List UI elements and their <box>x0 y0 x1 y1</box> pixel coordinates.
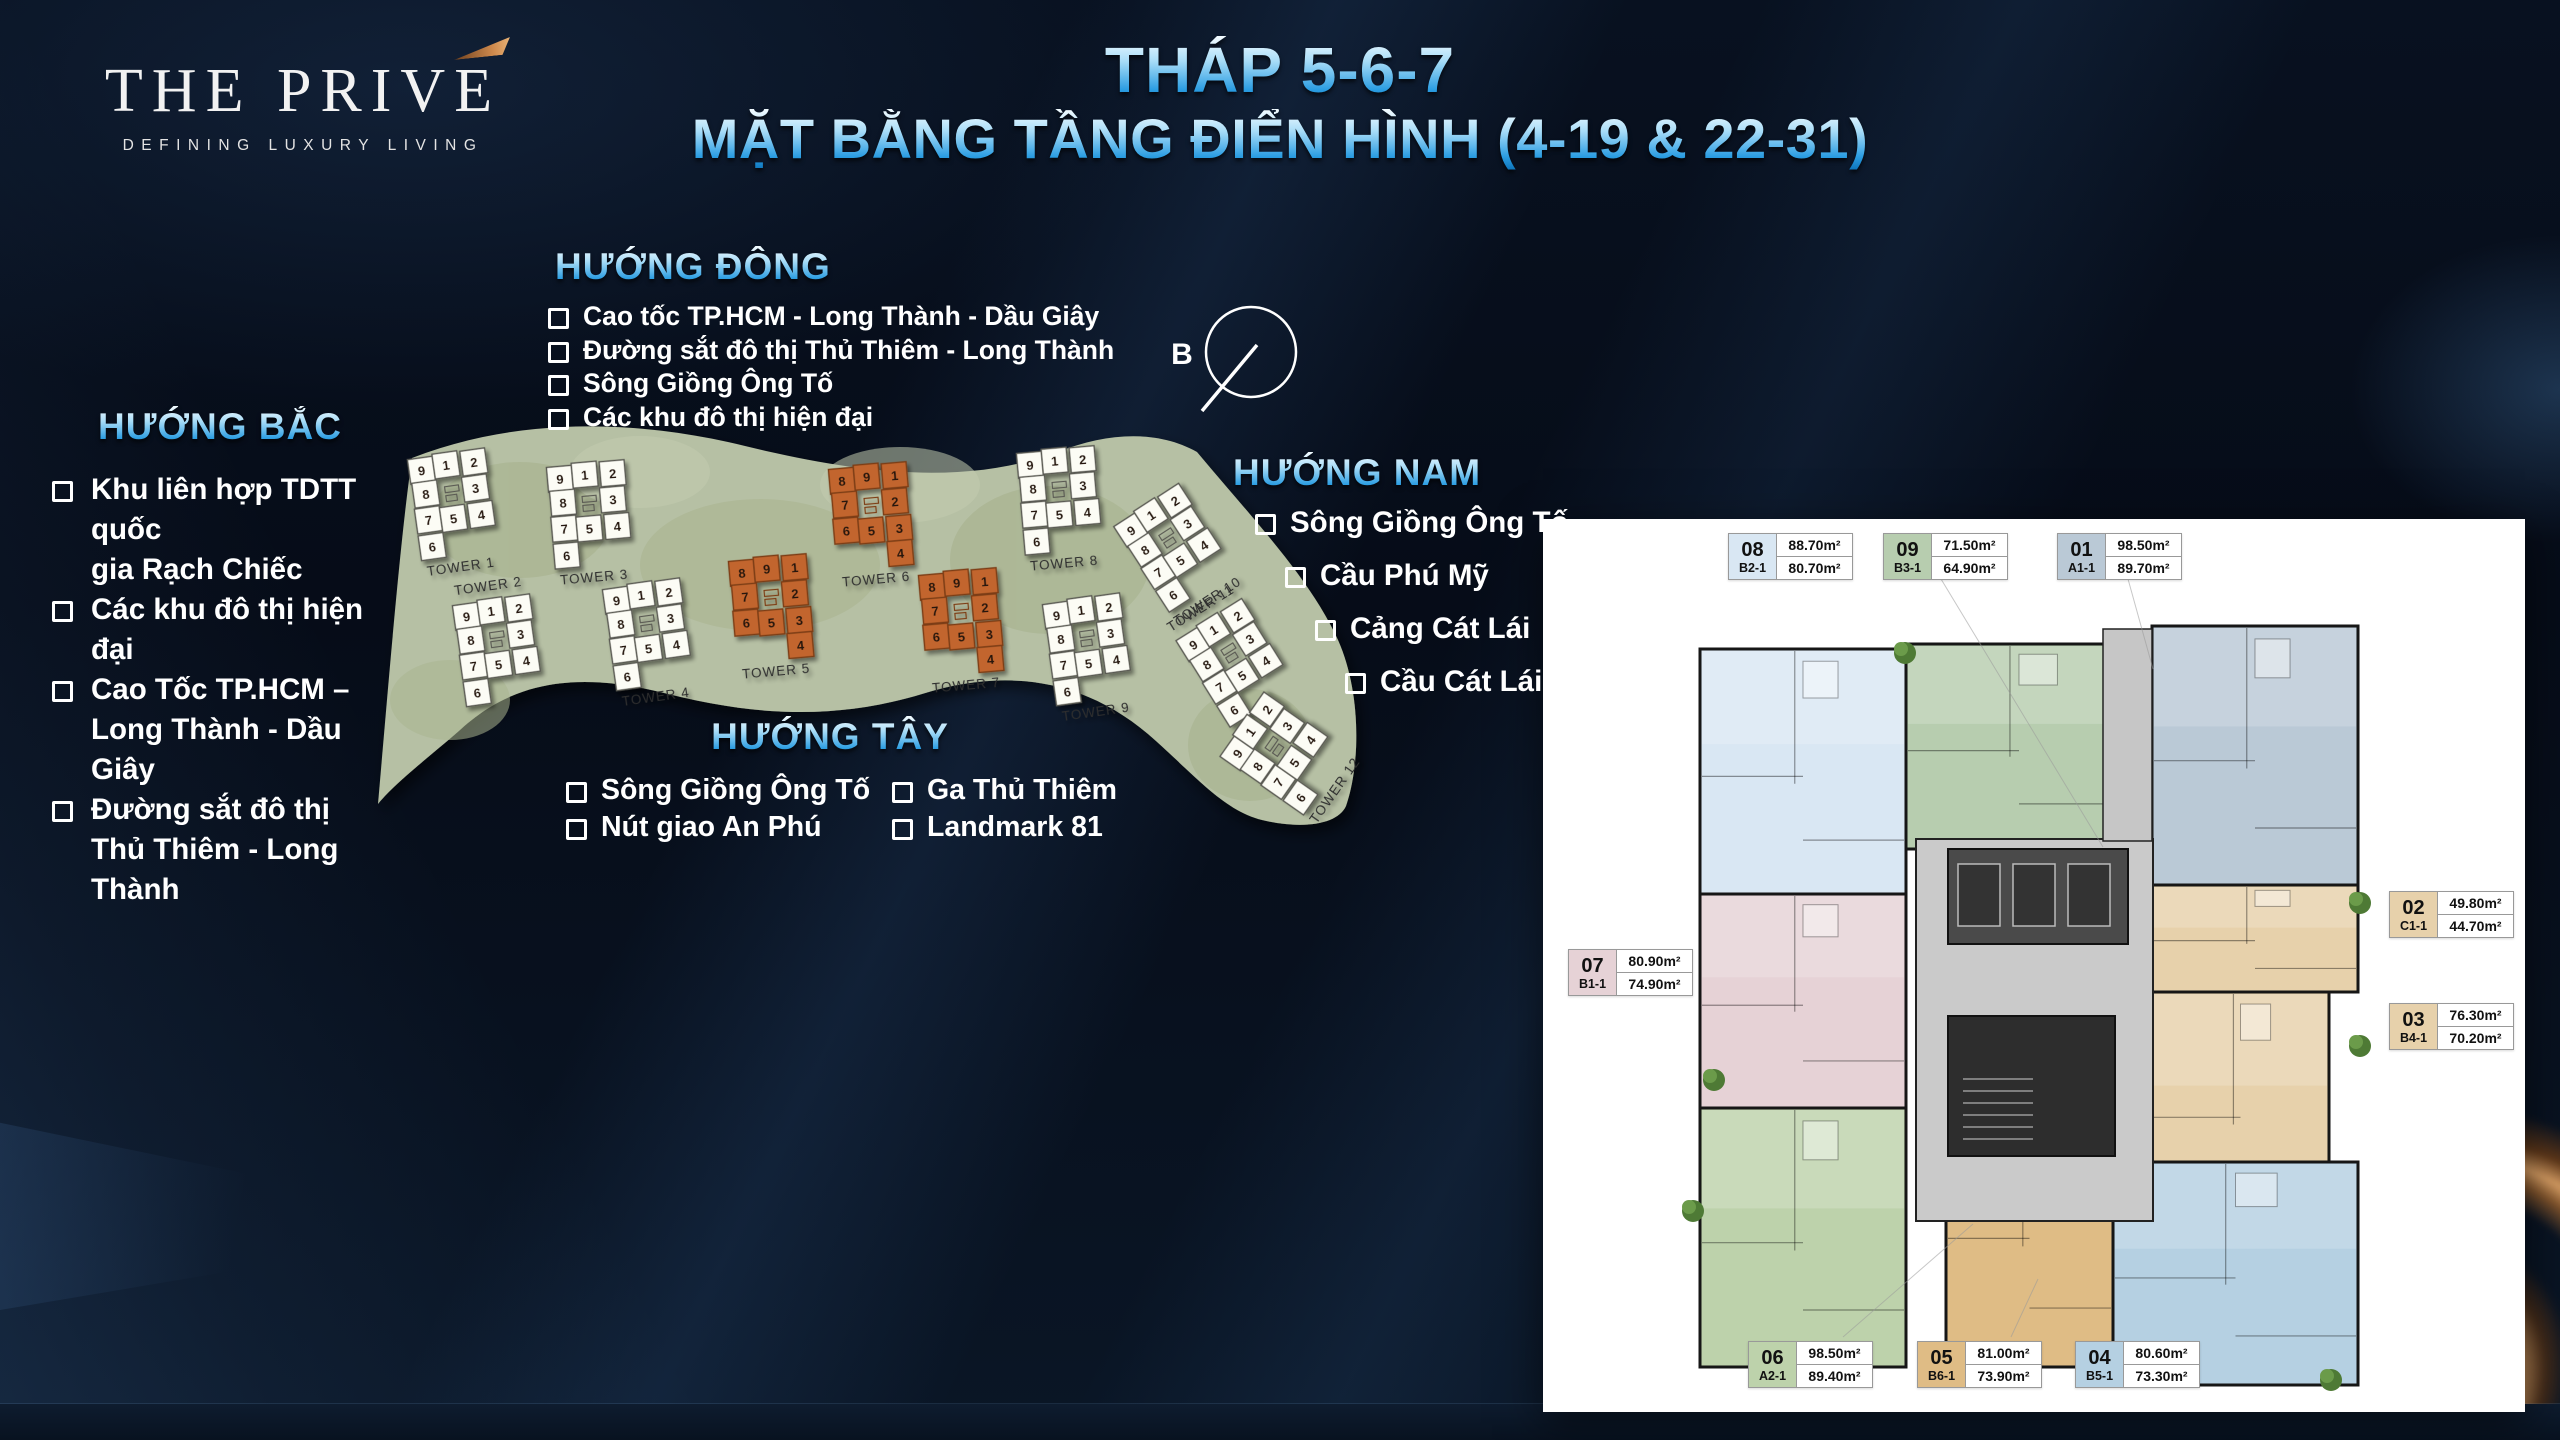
unit-number: 06 <box>1761 1347 1783 1369</box>
unit-area-net: 89.70m² <box>2106 556 2182 580</box>
unit-area-gross: 76.30m² <box>2438 1003 2514 1027</box>
unit-number-cell: 04B5-1 <box>2075 1341 2124 1388</box>
checkbox-bullet-icon <box>548 409 569 430</box>
unit-area-net: 64.90m² <box>1932 556 2008 580</box>
unit-code: B4-1 <box>2400 1031 2427 1045</box>
unit-area-net: 89.40m² <box>1797 1364 1873 1388</box>
title-line-2: MẶT BẰNG TẦNG ĐIỂN HÌNH (4-19 & 22-31) <box>560 109 2000 169</box>
list-item-label: Các khu đô thị hiện đại <box>583 401 873 435</box>
unit-areas: 80.90m²74.90m² <box>1617 949 1693 996</box>
checkbox-bullet-icon <box>548 375 569 396</box>
unit-code: C1-1 <box>2400 919 2427 933</box>
unit-number-cell: 02C1-1 <box>2389 891 2438 938</box>
unit-area-gross: 71.50m² <box>1932 533 2008 557</box>
unit-number-cell: 01A1-1 <box>2057 533 2106 580</box>
direction-north: HƯỚNG BẮC Khu liên hợp TDTT quốc gia Rạc… <box>32 406 408 910</box>
list-item-label: Nút giao An Phú <box>601 809 822 846</box>
list-item-label: Các khu đô thị hiện đại <box>91 590 408 670</box>
checkbox-bullet-icon <box>52 601 73 622</box>
unit-number-cell: 09B3-1 <box>1883 533 1932 580</box>
direction-east-list: Cao tốc TP.HCM - Long Thành - Dầu GiâyĐư… <box>548 300 1188 434</box>
direction-south-heading: HƯỚNG NAM <box>1233 452 1585 494</box>
direction-south-list: Sông Giồng Ông TốCầu Phú MỹCảng Cát LáiC… <box>1225 504 1585 700</box>
unit-area-gross: 88.70m² <box>1777 533 1853 557</box>
unit-number: 08 <box>1741 539 1763 561</box>
list-item-label: Đường sắt đô thị Thủ Thiêm - Long Thành <box>583 334 1114 368</box>
unit-code: B6-1 <box>1928 1369 1955 1383</box>
unit-number: 01 <box>2070 539 2092 561</box>
unit-area-net: 44.70m² <box>2438 914 2514 938</box>
unit-area-gross: 98.50m² <box>1797 1341 1873 1365</box>
unit-label-01: 01A1-198.50m²89.70m² <box>2057 533 2182 580</box>
unit-number-cell: 05B6-1 <box>1917 1341 1966 1388</box>
unit-labels: 08B2-188.70m²80.70m²09B3-171.50m²64.90m²… <box>1543 519 2525 1412</box>
direction-north-list: Khu liên hợp TDTT quốc gia Rạch ChiếcCác… <box>32 470 408 910</box>
checkbox-bullet-icon <box>52 681 73 702</box>
unit-label-04: 04B5-180.60m²73.30m² <box>2075 1341 2200 1388</box>
list-item-label: Ga Thủ Thiêm <box>927 772 1117 809</box>
unit-label-09: 09B3-171.50m²64.90m² <box>1883 533 2008 580</box>
unit-label-07: 07B1-180.90m²74.90m² <box>1568 949 1693 996</box>
checkbox-bullet-icon <box>52 801 73 822</box>
page-title: THÁP 5-6-7 MẶT BẰNG TẦNG ĐIỂN HÌNH (4-19… <box>560 36 2000 170</box>
unit-area-net: 74.90m² <box>1617 972 1693 996</box>
checkbox-bullet-icon <box>892 782 913 803</box>
list-item: Cảng Cát Lái <box>1225 610 1585 647</box>
direction-east: HƯỚNG ĐÔNG Cao tốc TP.HCM - Long Thành -… <box>548 246 1188 434</box>
unit-number: 09 <box>1896 539 1918 561</box>
unit-code: A2-1 <box>1759 1369 1786 1383</box>
unit-label-02: 02C1-149.80m²44.70m² <box>2389 891 2514 938</box>
unit-areas: 80.60m²73.30m² <box>2124 1341 2200 1388</box>
unit-area-net: 73.30m² <box>2124 1364 2200 1388</box>
list-item-label: Khu liên hợp TDTT quốc gia Rạch Chiếc <box>91 470 408 590</box>
unit-code: B1-1 <box>1579 977 1606 991</box>
unit-label-05: 05B6-181.00m²73.90m² <box>1917 1341 2042 1388</box>
list-item-label: Cao tốc TP.HCM - Long Thành - Dầu Giây <box>583 300 1099 334</box>
list-item: Landmark 81 <box>892 809 1117 846</box>
list-item: Cao tốc TP.HCM - Long Thành - Dầu Giây <box>548 300 1188 334</box>
direction-west-list-2: Ga Thủ ThiêmLandmark 81 <box>892 772 1117 846</box>
unit-number-cell: 03B4-1 <box>2389 1003 2438 1050</box>
unit-code: B2-1 <box>1739 561 1766 575</box>
checkbox-bullet-icon <box>1315 620 1336 641</box>
checkbox-bullet-icon <box>1285 567 1306 588</box>
checkbox-bullet-icon <box>566 782 587 803</box>
list-item-label: Landmark 81 <box>927 809 1103 846</box>
unit-areas: 88.70m²80.70m² <box>1777 533 1853 580</box>
list-item-label: Sông Giồng Ông Tố <box>1290 504 1569 541</box>
unit-areas: 49.80m²44.70m² <box>2438 891 2514 938</box>
list-item-label: Sông Giồng Ông Tố <box>601 772 870 809</box>
unit-areas: 98.50m²89.70m² <box>2106 533 2182 580</box>
list-item: Đường sắt đô thị Thủ Thiêm - Long Thành <box>52 790 408 910</box>
unit-areas: 71.50m²64.90m² <box>1932 533 2008 580</box>
brand-accent-letter: E <box>454 56 501 127</box>
unit-code: B5-1 <box>2086 1369 2113 1383</box>
unit-area-net: 73.90m² <box>1966 1364 2042 1388</box>
unit-area-gross: 80.60m² <box>2124 1341 2200 1365</box>
list-item: Sông Giồng Ông Tố <box>1225 504 1585 541</box>
unit-area-gross: 81.00m² <box>1966 1341 2042 1365</box>
unit-number: 02 <box>2402 897 2424 919</box>
unit-number: 03 <box>2402 1009 2424 1031</box>
list-item: Sông Giồng Ông Tố <box>566 772 892 809</box>
list-item-label: Cầu Cát Lái <box>1380 663 1542 700</box>
list-item: Sông Giồng Ông Tố <box>548 367 1188 401</box>
unit-areas: 81.00m²73.90m² <box>1966 1341 2042 1388</box>
unit-area-gross: 49.80m² <box>2438 891 2514 915</box>
list-item-label: Cầu Phú Mỹ <box>1320 557 1489 594</box>
unit-number: 05 <box>1930 1347 1952 1369</box>
list-item: Các khu đô thị hiện đại <box>548 401 1188 435</box>
list-item: Ga Thủ Thiêm <box>892 772 1117 809</box>
direction-south: HƯỚNG NAM Sông Giồng Ông TốCầu Phú MỹCản… <box>1225 452 1585 716</box>
direction-west-list-1: Sông Giồng Ông TốNút giao An Phú <box>566 772 892 846</box>
direction-east-heading: HƯỚNG ĐÔNG <box>555 246 1188 288</box>
checkbox-bullet-icon <box>1345 673 1366 694</box>
unit-label-06: 06A2-198.50m²89.40m² <box>1748 1341 1873 1388</box>
unit-number-cell: 06A2-1 <box>1748 1341 1797 1388</box>
list-item: Cầu Phú Mỹ <box>1225 557 1585 594</box>
list-item: Đường sắt đô thị Thủ Thiêm - Long Thành <box>548 334 1188 368</box>
list-item-label: Đường sắt đô thị Thủ Thiêm - Long Thành <box>91 790 408 910</box>
unit-area-gross: 80.90m² <box>1617 949 1693 973</box>
unit-areas: 76.30m²70.20m² <box>2438 1003 2514 1050</box>
list-item-label: Sông Giồng Ông Tố <box>583 367 833 401</box>
checkbox-bullet-icon <box>1255 514 1276 535</box>
unit-code: B3-1 <box>1894 561 1921 575</box>
direction-west-heading: HƯỚNG TÂY <box>540 716 1120 758</box>
list-item: Khu liên hợp TDTT quốc gia Rạch Chiếc <box>52 470 408 590</box>
unit-areas: 98.50m²89.40m² <box>1797 1341 1873 1388</box>
unit-number: 04 <box>2088 1347 2110 1369</box>
brand-tagline: DEFINING LUXURY LIVING <box>88 137 518 155</box>
brand-logo: THE PRIVE DEFINING LUXURY LIVING <box>88 56 518 155</box>
checkbox-bullet-icon <box>52 481 73 502</box>
checkbox-bullet-icon <box>548 308 569 329</box>
direction-west: HƯỚNG TÂY Sông Giồng Ông TốNút giao An P… <box>540 716 1120 846</box>
list-item: Cao Tốc TP.HCM – Long Thành - Dầu Giây <box>52 670 408 790</box>
list-item: Cầu Cát Lái <box>1225 663 1585 700</box>
unit-code: A1-1 <box>2068 561 2095 575</box>
unit-label-03: 03B4-176.30m²70.20m² <box>2389 1003 2514 1050</box>
floor-plan-panel: 08B2-188.70m²80.70m²09B3-171.50m²64.90m²… <box>1543 519 2525 1412</box>
unit-number-cell: 08B2-1 <box>1728 533 1777 580</box>
direction-north-heading: HƯỚNG BẮC <box>32 406 408 448</box>
unit-area-net: 70.20m² <box>2438 1026 2514 1050</box>
unit-area-gross: 98.50m² <box>2106 533 2182 557</box>
list-item: Nút giao An Phú <box>566 809 892 846</box>
list-item-label: Cao Tốc TP.HCM – Long Thành - Dầu Giây <box>91 670 408 790</box>
checkbox-bullet-icon <box>566 819 587 840</box>
unit-number: 07 <box>1581 955 1603 977</box>
unit-area-net: 80.70m² <box>1777 556 1853 580</box>
checkbox-bullet-icon <box>548 342 569 363</box>
list-item-label: Cảng Cát Lái <box>1350 610 1530 647</box>
title-line-1: THÁP 5-6-7 <box>560 36 2000 105</box>
unit-label-08: 08B2-188.70m²80.70m² <box>1728 533 1853 580</box>
checkbox-bullet-icon <box>892 819 913 840</box>
unit-number-cell: 07B1-1 <box>1568 949 1617 996</box>
brand-name: THE PRIVE <box>88 56 518 127</box>
list-item: Các khu đô thị hiện đại <box>52 590 408 670</box>
